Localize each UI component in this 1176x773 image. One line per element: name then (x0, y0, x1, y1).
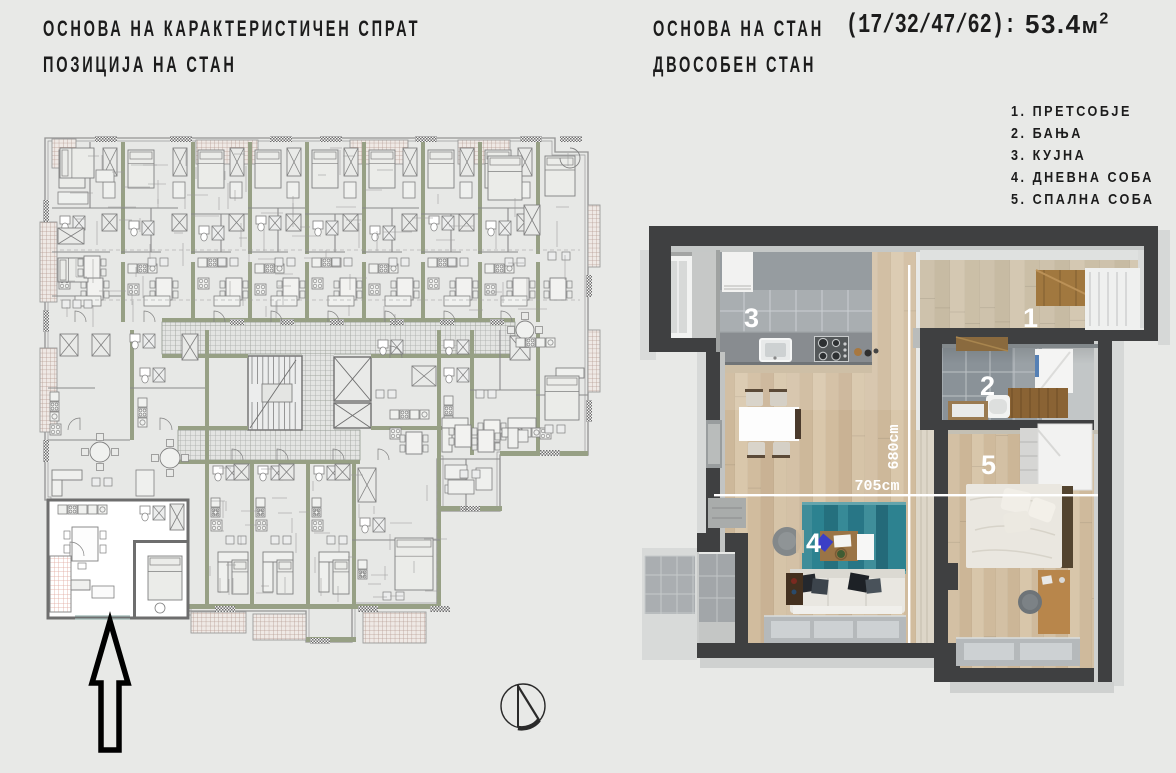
svg-text:705cm: 705cm (854, 478, 899, 495)
svg-text:4: 4 (806, 528, 821, 558)
svg-text:3: 3 (744, 303, 759, 333)
svg-text:1: 1 (1023, 303, 1038, 333)
svg-text:680cm: 680cm (886, 424, 903, 469)
svg-text:5: 5 (981, 450, 996, 480)
svg-text:2: 2 (980, 371, 995, 401)
